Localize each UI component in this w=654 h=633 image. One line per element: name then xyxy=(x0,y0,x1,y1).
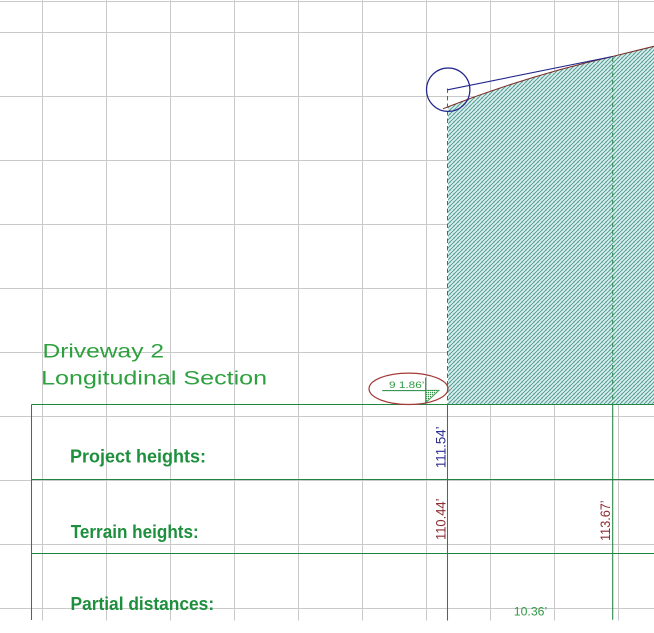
svg-text:110.44’: 110.44’ xyxy=(432,499,448,541)
svg-text:9 1.86’: 9 1.86’ xyxy=(389,380,424,391)
svg-text:Terrain heights:: Terrain heights: xyxy=(71,521,199,542)
svg-text:Driveway 2: Driveway 2 xyxy=(43,341,165,363)
svg-text:Partial distances:: Partial distances: xyxy=(71,593,215,614)
svg-text:111.54’: 111.54’ xyxy=(432,426,448,468)
svg-text:Project heights:: Project heights: xyxy=(70,446,206,467)
svg-text:113.67’: 113.67’ xyxy=(597,500,613,541)
svg-text:10.36’: 10.36’ xyxy=(514,607,547,619)
svg-text:Longitudinal Section: Longitudinal Section xyxy=(41,368,267,390)
